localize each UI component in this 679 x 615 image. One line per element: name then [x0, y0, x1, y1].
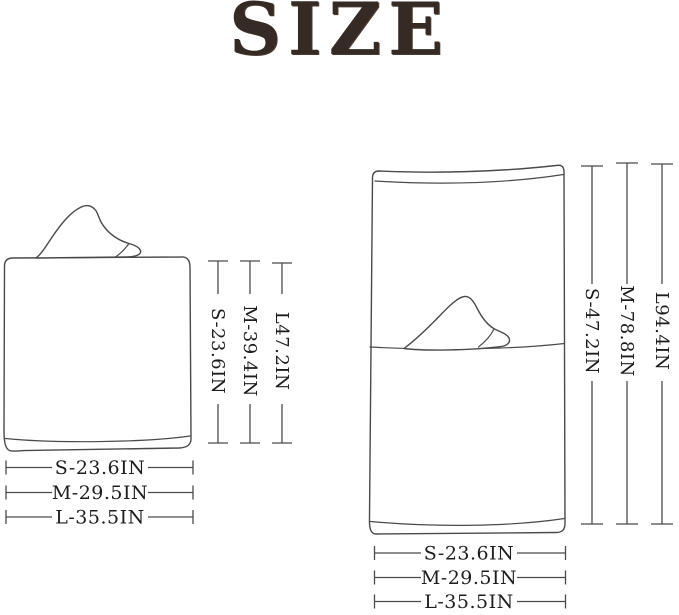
- folded-towel-hood: [36, 206, 141, 258]
- height-dimension-label: M-78.8IN: [616, 285, 637, 376]
- width-dimension-label: M-29.5IN: [421, 567, 517, 589]
- folded-width-dim-s: S-23.6IN: [6, 457, 193, 479]
- size-diagram: S-23.6IN M-39.4IN L47.2IN: [0, 0, 679, 615]
- width-dimension-label: L-35.5IN: [55, 507, 144, 529]
- folded-width-dim-l: L-35.5IN: [6, 507, 193, 529]
- folded-height-dim-s: S-23.6IN: [207, 261, 228, 443]
- open-height-dimensions: S-47.2IN M-78.8IN L94.4IN: [581, 163, 673, 524]
- folded-height-dim-l: L47.2IN: [271, 263, 292, 443]
- width-dimension-label: M-29.5IN: [52, 482, 148, 504]
- height-dimension-label: S-23.6IN: [207, 308, 228, 394]
- width-dimension-label: S-23.6IN: [55, 457, 146, 479]
- folded-height-dim-m: M-39.4IN: [239, 261, 260, 443]
- size-chart: SIZE S-23.6IN: [0, 0, 679, 615]
- width-dimension-label: S-23.6IN: [424, 543, 515, 565]
- height-dimension-label: L47.2IN: [271, 312, 292, 390]
- open-width-dimensions: S-23.6IN M-29.5IN L-35.5IN: [375, 543, 566, 614]
- open-width-dim-m: M-29.5IN: [375, 567, 566, 589]
- folded-width-dim-m: M-29.5IN: [6, 482, 193, 504]
- open-height-dim-l: L94.4IN: [651, 164, 673, 524]
- height-dimension-label: M-39.4IN: [239, 305, 260, 396]
- open-width-dim-s: S-23.6IN: [375, 543, 566, 565]
- open-towel-drawing: [369, 165, 565, 534]
- width-dimension-label: L-35.5IN: [424, 591, 513, 613]
- open-height-dim-m: M-78.8IN: [616, 163, 638, 524]
- folded-towel-body: [4, 257, 191, 451]
- folded-towel-drawing: [4, 206, 191, 451]
- folded-height-dimensions: S-23.6IN M-39.4IN L47.2IN: [207, 261, 292, 443]
- height-dimension-label: S-47.2IN: [581, 288, 602, 374]
- folded-width-dimensions: S-23.6IN M-29.5IN L-35.5IN: [6, 457, 193, 529]
- open-height-dim-s: S-47.2IN: [581, 166, 603, 524]
- height-dimension-label: L94.4IN: [651, 292, 672, 370]
- open-width-dim-l: L-35.5IN: [375, 591, 566, 613]
